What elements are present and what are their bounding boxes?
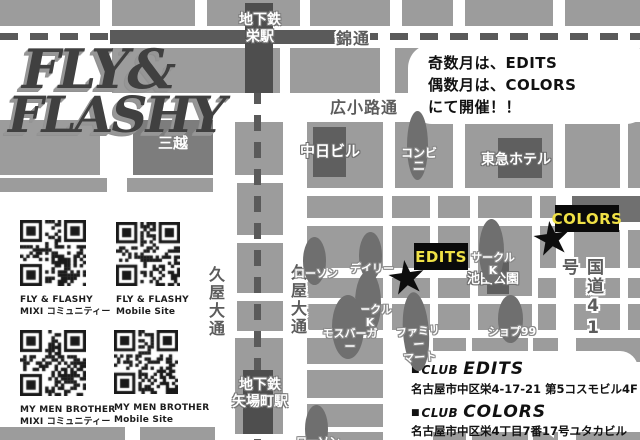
store-label-conbini: コンビニ xyxy=(398,119,440,174)
station-label-sakae: 地下鉄 栄駅 xyxy=(220,12,300,46)
schedule-line: 偶数月は、COLORS xyxy=(428,75,640,97)
logo-line2: FLASHY xyxy=(8,90,225,140)
qr-subtitle: Mobile Site xyxy=(114,415,210,427)
map-block xyxy=(478,196,532,218)
map-block xyxy=(307,196,383,218)
bullet-icon: ■ xyxy=(411,409,420,419)
map-block xyxy=(628,304,640,330)
building-label-tokyu: 東急ホテル xyxy=(481,149,551,169)
building-label-chunichi: 中日ビル xyxy=(300,140,360,161)
qr-cell: FLY & FLASHY MIXI コミュニティー xyxy=(20,220,116,318)
map-block xyxy=(565,0,640,26)
qr-cell: MY MEN BROTHER MIXI コミュニティー xyxy=(20,330,116,428)
qr-title: MY MEN BROTHER xyxy=(114,403,210,415)
store-label-family-mart: ファミリー マート xyxy=(390,299,446,366)
qr-code-flyflashy-mixi xyxy=(20,220,86,286)
club-entry-edits: ■ CLUB EDITS 名古屋市中区栄4-17-21 第5コスモビル4F xyxy=(411,360,638,397)
map-block xyxy=(438,278,470,298)
store-label-mos-burger: モスバーガー xyxy=(318,303,382,354)
qr-title: MY MEN BROTHER xyxy=(20,405,116,417)
station-label-yabacho: 地下鉄 矢場町駅 xyxy=(208,377,312,411)
map-block xyxy=(565,122,620,188)
club-name: COLORS xyxy=(463,403,546,422)
road-label-route41: 国道41号 xyxy=(556,258,606,350)
qr-code-mymenbrother-mobile xyxy=(114,330,178,394)
map-block xyxy=(307,370,383,398)
map-block xyxy=(465,0,553,26)
schedule-line: 奇数月は、EDITS xyxy=(428,53,640,75)
schedule-line: にて開催！！ xyxy=(428,97,640,119)
map-block xyxy=(0,0,100,26)
store-label-shop99: ショプ99 xyxy=(487,301,537,339)
road-label-hirokoji: 広小路通 xyxy=(330,94,398,118)
club-entry-colors: ■ CLUB COLORS 名古屋市中区栄4丁目7番17号ユタカビル3F xyxy=(411,403,638,440)
store-label-lawson-bottom: ローソン xyxy=(295,411,341,440)
qr-code-flyflashy-mobile xyxy=(116,222,180,286)
map-block xyxy=(628,122,640,188)
map-block xyxy=(538,278,556,298)
club-name: EDITS xyxy=(463,360,524,379)
map-block xyxy=(402,0,453,26)
club-address: 名古屋市中区栄4丁目7番17号ユタカビル3F xyxy=(411,423,638,440)
map-block xyxy=(392,196,430,218)
qr-cell: MY MEN BROTHER Mobile Site xyxy=(114,330,210,426)
map-block xyxy=(112,0,195,26)
schedule-callout: 奇数月は、EDITS 偶数月は、COLORS にて開催！！ xyxy=(408,44,640,124)
qr-cell: FLY & FLASHY Mobile Site xyxy=(116,222,212,318)
map-block xyxy=(538,304,556,330)
map-block xyxy=(438,196,470,218)
club-address: 名古屋市中区栄4-17-21 第5コスモビル4F xyxy=(411,381,638,397)
star-marker-edits: ★ xyxy=(383,251,430,302)
qr-subtitle: MIXI コミュニティー xyxy=(20,417,116,429)
road-label-nishiki: 錦通 xyxy=(336,25,370,49)
map-block xyxy=(628,278,640,298)
map-block xyxy=(628,230,640,268)
map-block xyxy=(310,0,390,26)
qr-subtitle: Mobile Site xyxy=(116,307,212,319)
store-label-circlek-top: サークルK xyxy=(468,227,518,278)
club-prefix: CLUB xyxy=(422,407,459,420)
map-block xyxy=(140,427,215,440)
store-label-lawson-top: ローソン xyxy=(293,243,339,281)
qr-code-mymenbrother-mixi xyxy=(20,330,86,396)
qr-subtitle: MIXI コミュニティー xyxy=(20,307,116,319)
star-marker-colors: ★ xyxy=(528,212,575,263)
map-block xyxy=(127,178,213,192)
map-block xyxy=(290,48,380,93)
flyer-map: 奇数月は、EDITS 偶数月は、COLORS にて開催！！ ■ CLUB EDI… xyxy=(0,0,640,440)
map-block xyxy=(0,178,107,192)
qr-title: FLY & FLASHY xyxy=(116,295,212,307)
qr-title: FLY & FLASHY xyxy=(20,295,116,307)
map-block xyxy=(0,427,125,440)
club-prefix: CLUB xyxy=(422,364,459,377)
